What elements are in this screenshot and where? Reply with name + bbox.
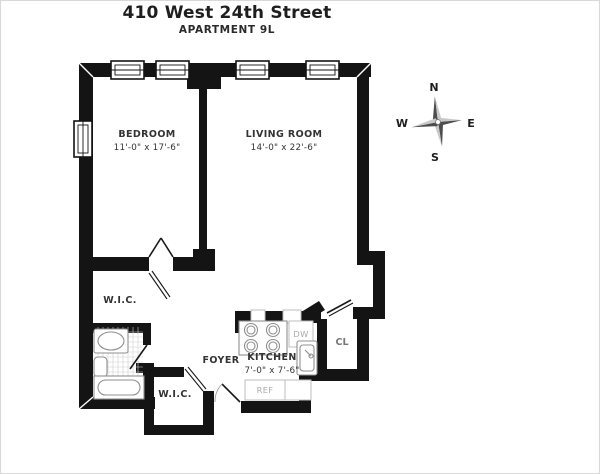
window-icon [236,61,269,79]
wall-segment [241,401,309,413]
kitchen-dims: 7'-0" x 7'-6" [244,366,299,376]
wic-upper-label: W.I.C. [103,295,136,306]
living-room-label: LIVING ROOM [246,129,323,140]
wic-lower-label: W.I.C. [158,389,191,400]
wall-segment [357,63,369,259]
compass-label-w: W [396,117,408,130]
closet-label: CL [335,337,348,348]
window-icon [74,121,92,157]
compass-star-icon [408,93,465,150]
counter-box [285,380,311,400]
wall-segment [144,425,214,435]
window-icon [306,61,339,79]
wall-segment [79,257,149,271]
door-icon [149,271,170,299]
stove-icon [239,321,287,355]
refrigerator-label: REF [257,385,274,395]
floor-plan-svg: BEDROOM 11'-0" x 17'-6" LIVING ROOM 14'-… [1,1,600,474]
wall-segment [193,249,215,269]
dishwasher-label: DW [293,329,308,339]
kitchen-label: KITCHEN [247,352,297,363]
wall-segment [317,319,327,375]
wall-segment [199,77,207,257]
entry-door-icon [215,384,240,402]
bedroom-dims: 11'-0" x 17'-6" [114,143,181,153]
living-room-dims: 14'-0" x 22'-6" [251,143,318,153]
door-icon [327,300,353,316]
wall-segment [143,323,151,345]
floor-plan-page: 410 West 24th Street APARTMENT 9L [0,0,600,474]
bathtub-icon [94,376,144,399]
wall-segment [187,63,221,89]
compass-rose: N E S W [396,81,475,164]
wall-segment [79,63,93,409]
bathroom-sink-icon [94,329,128,353]
compass-label-s: S [431,151,439,164]
toilet-icon [94,357,107,377]
bedroom-label: BEDROOM [118,129,175,140]
door-icon [149,238,173,257]
window-icon [156,61,189,79]
kitchen-sink-icon [297,341,317,375]
foyer-label: FOYER [203,355,240,366]
wall-segment [144,367,154,435]
window-icon [111,61,144,79]
compass-label-n: N [429,81,438,94]
door-icon [185,367,206,391]
wall-segment [144,367,184,377]
compass-label-e: E [467,117,475,130]
